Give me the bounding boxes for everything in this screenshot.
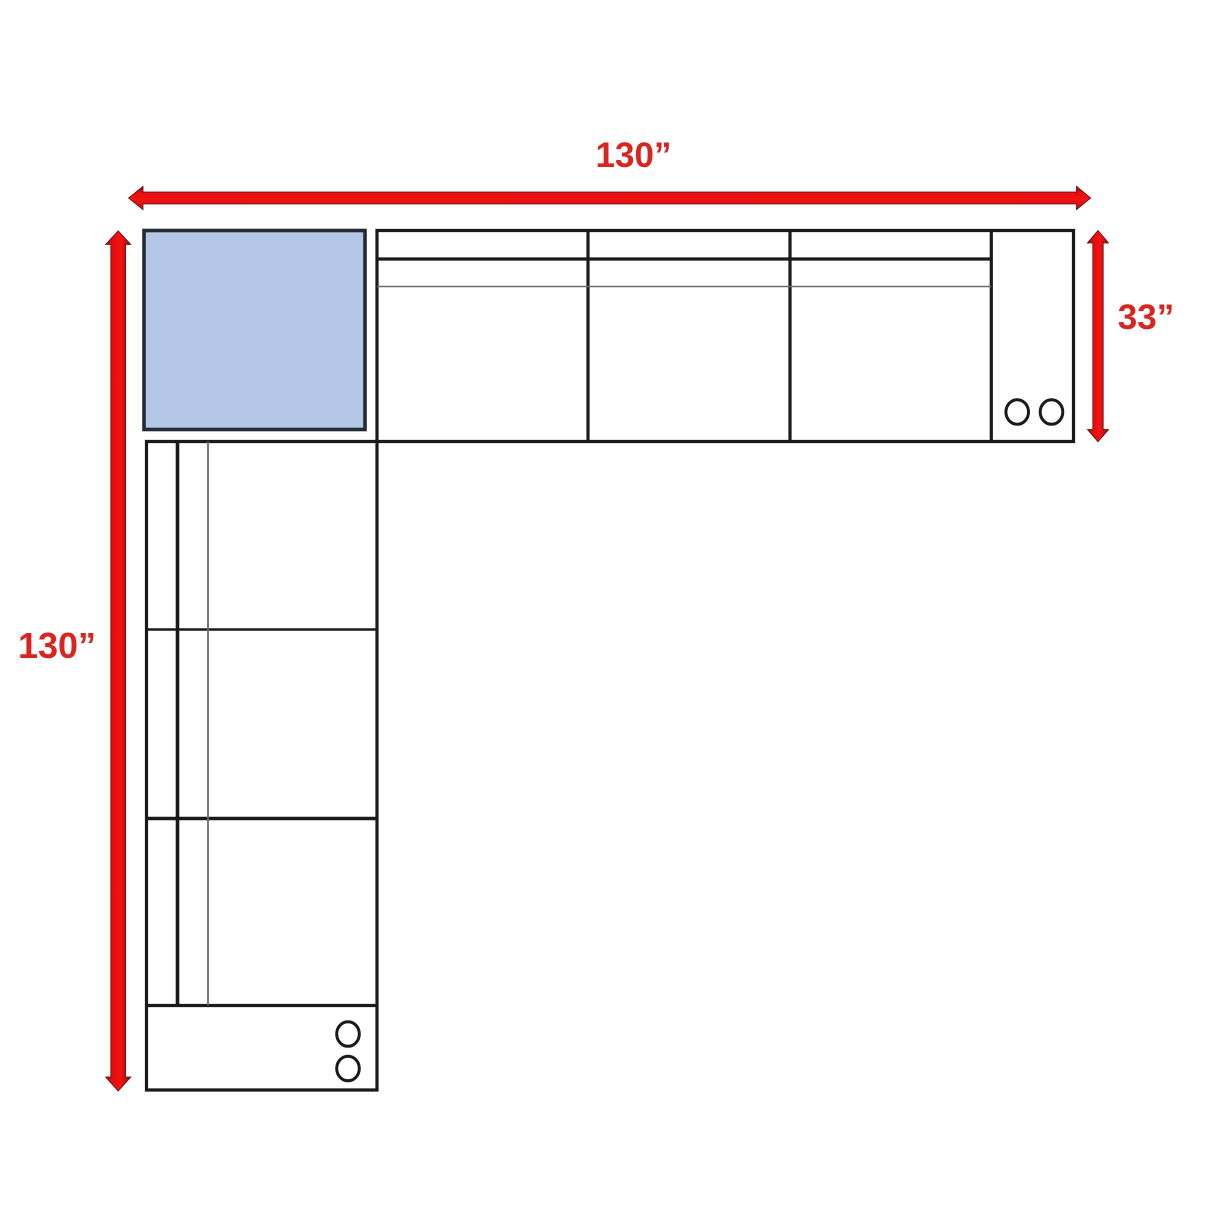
svg-text:130”: 130” <box>18 625 96 666</box>
svg-text:130”: 130” <box>596 136 672 175</box>
svg-text:33”: 33” <box>1118 298 1174 337</box>
